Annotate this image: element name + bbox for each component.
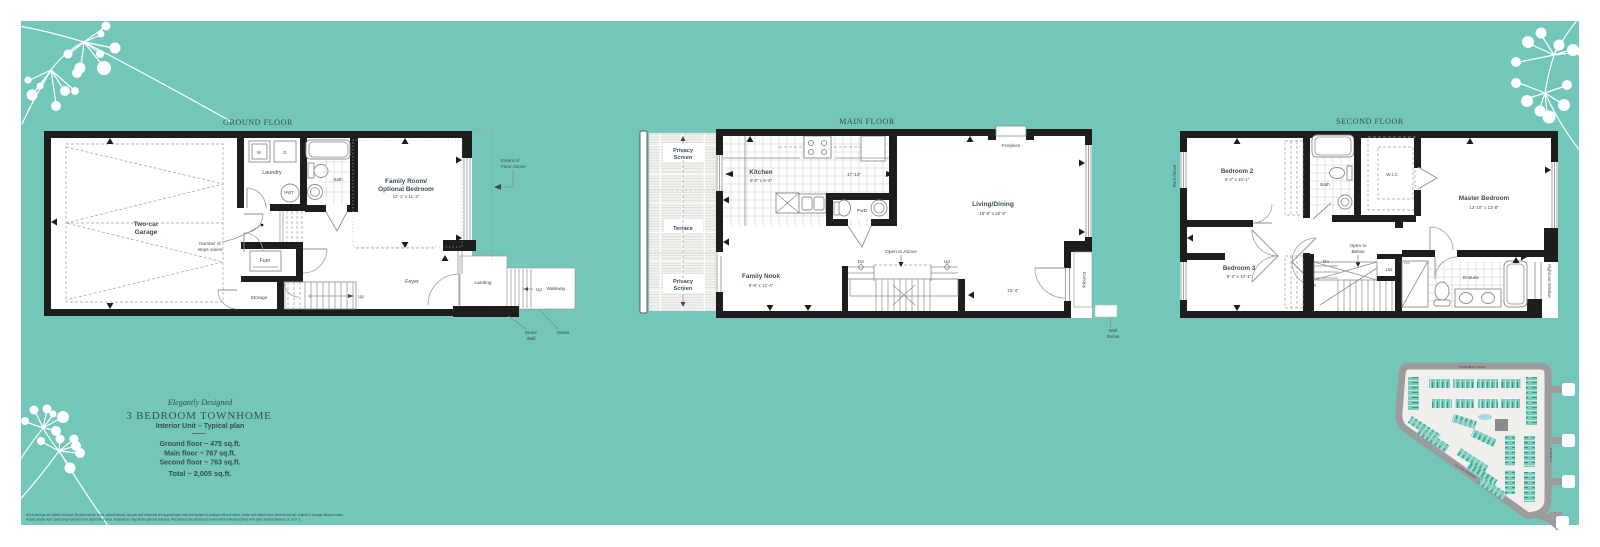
svg-text:Family Nook: Family Nook bbox=[742, 273, 780, 280]
svg-text:Landing: Landing bbox=[474, 280, 491, 286]
svg-text:Fireplace: Fireplace bbox=[1002, 143, 1021, 148]
svg-text:Extent of: Extent of bbox=[501, 158, 520, 163]
svg-text:Bedroom 2: Bedroom 2 bbox=[1221, 168, 1254, 175]
svg-text:Master Bedroom: Master Bedroom bbox=[1459, 195, 1510, 202]
svg-text:Roof Above: Roof Above bbox=[1172, 164, 1177, 187]
svg-text:Privacy: Privacy bbox=[673, 148, 694, 154]
svg-text:Bedroom 3: Bedroom 3 bbox=[1223, 265, 1256, 272]
svg-text:Two-car: Two-car bbox=[134, 221, 159, 228]
svg-text:W.I.C: W.I.C bbox=[1386, 172, 1398, 178]
svg-text:Interior Unit – Typical plan: Interior Unit – Typical plan bbox=[156, 422, 245, 430]
svg-text:Up: Up bbox=[358, 294, 364, 299]
svg-text:STREET A: STREET A bbox=[1549, 448, 1553, 462]
svg-text:10'-4": 10'-4" bbox=[1007, 288, 1019, 293]
svg-text:Garage: Garage bbox=[135, 229, 158, 236]
svg-text:Actual usable floor space may: Actual usable floor space may vary from … bbox=[26, 518, 302, 522]
svg-text:Open to Above: Open to Above bbox=[885, 249, 917, 255]
svg-text:Storage: Storage bbox=[251, 295, 268, 301]
svg-text:steps varies: steps varies bbox=[198, 247, 223, 252]
svg-text:THORNBURY ROAD: THORNBURY ROAD bbox=[1459, 365, 1485, 369]
svg-text:Ground floor ~ 475 sq.ft.: Ground floor ~ 475 sq.ft. bbox=[159, 441, 240, 448]
svg-text:Up: Up bbox=[944, 259, 950, 265]
svg-text:Canopy: Canopy bbox=[1081, 272, 1087, 289]
svg-text:Privacy: Privacy bbox=[673, 279, 694, 285]
svg-text:3 BEDROOM TOWNHOME: 3 BEDROOM TOWNHOME bbox=[126, 410, 271, 422]
svg-text:Wall: Wall bbox=[1109, 328, 1118, 333]
svg-text:Total ~ 2,005 sq.ft.: Total ~ 2,005 sq.ft. bbox=[169, 469, 232, 478]
svg-text:Dn: Dn bbox=[1323, 259, 1329, 265]
svg-text:Ensuite: Ensuite bbox=[1463, 275, 1479, 281]
svg-text:12'-1" x 11'-3": 12'-1" x 11'-3" bbox=[393, 194, 420, 199]
svg-text:9'-2" x 10'-1": 9'-2" x 10'-1" bbox=[1227, 274, 1252, 279]
svg-text:Optional Bedroom: Optional Bedroom bbox=[378, 186, 434, 193]
svg-text:Second floor ~ 763 sq.ft.: Second floor ~ 763 sq.ft. bbox=[159, 460, 240, 467]
svg-text:Stone: Stone bbox=[525, 330, 537, 335]
svg-text:PwD: PwD bbox=[857, 208, 868, 214]
svg-text:Wall: Wall bbox=[527, 336, 536, 341]
svg-text:9'-2" x 10'-1": 9'-2" x 10'-1" bbox=[1225, 177, 1250, 182]
svg-text:Up: Up bbox=[536, 287, 542, 292]
svg-text:Kitchen: Kitchen bbox=[749, 169, 773, 176]
svg-text:Laundry: Laundry bbox=[262, 170, 282, 176]
svg-text:Below: Below bbox=[1107, 334, 1120, 339]
svg-text:Living/Dining: Living/Dining bbox=[972, 201, 1014, 208]
svg-text:9'-9" x 12'-4": 9'-9" x 12'-4" bbox=[749, 283, 774, 288]
svg-text:13'-10" x 13'-8": 13'-10" x 13'-8" bbox=[1469, 205, 1499, 210]
svg-text:17'-10": 17'-10" bbox=[847, 172, 862, 177]
svg-text:Bath: Bath bbox=[1320, 182, 1330, 187]
svg-text:SECOND FLOOR: SECOND FLOOR bbox=[1336, 117, 1404, 126]
svg-text:Dn: Dn bbox=[858, 259, 864, 265]
svg-text:Number of: Number of bbox=[199, 241, 221, 246]
svg-text:18'-8" x 20'-0": 18'-8" x 20'-0" bbox=[979, 211, 1006, 216]
svg-text:9'-0" x 5'-4": 9'-0" x 5'-4" bbox=[750, 178, 773, 183]
svg-text:Elegantly Designed: Elegantly Designed bbox=[167, 398, 233, 407]
svg-text:Main floor ~ 767 sq.ft.: Main floor ~ 767 sq.ft. bbox=[164, 451, 236, 458]
svg-text:LIN: LIN bbox=[1386, 267, 1393, 272]
svg-text:MAIN FLOOR: MAIN FLOOR bbox=[839, 117, 895, 126]
svg-text:Walkway: Walkway bbox=[546, 286, 566, 292]
svg-text:High/Low Window: High/Low Window bbox=[1547, 264, 1552, 298]
svg-text:Family Room/: Family Room/ bbox=[385, 178, 427, 185]
svg-text:Varies: Varies bbox=[557, 330, 570, 335]
svg-text:Floor Above: Floor Above bbox=[501, 164, 526, 169]
svg-text:HWT: HWT bbox=[284, 190, 294, 195]
svg-text:Open to: Open to bbox=[1349, 243, 1366, 249]
svg-text:Below: Below bbox=[1351, 249, 1365, 255]
svg-text:All renderings are artist's co: All renderings are artist's concept. All… bbox=[26, 513, 344, 517]
svg-text:Furn: Furn bbox=[260, 258, 271, 264]
svg-text:D: D bbox=[283, 150, 286, 155]
svg-text:Foyer: Foyer bbox=[405, 279, 419, 285]
svg-text:GROUND FLOOR: GROUND FLOOR bbox=[223, 118, 293, 127]
